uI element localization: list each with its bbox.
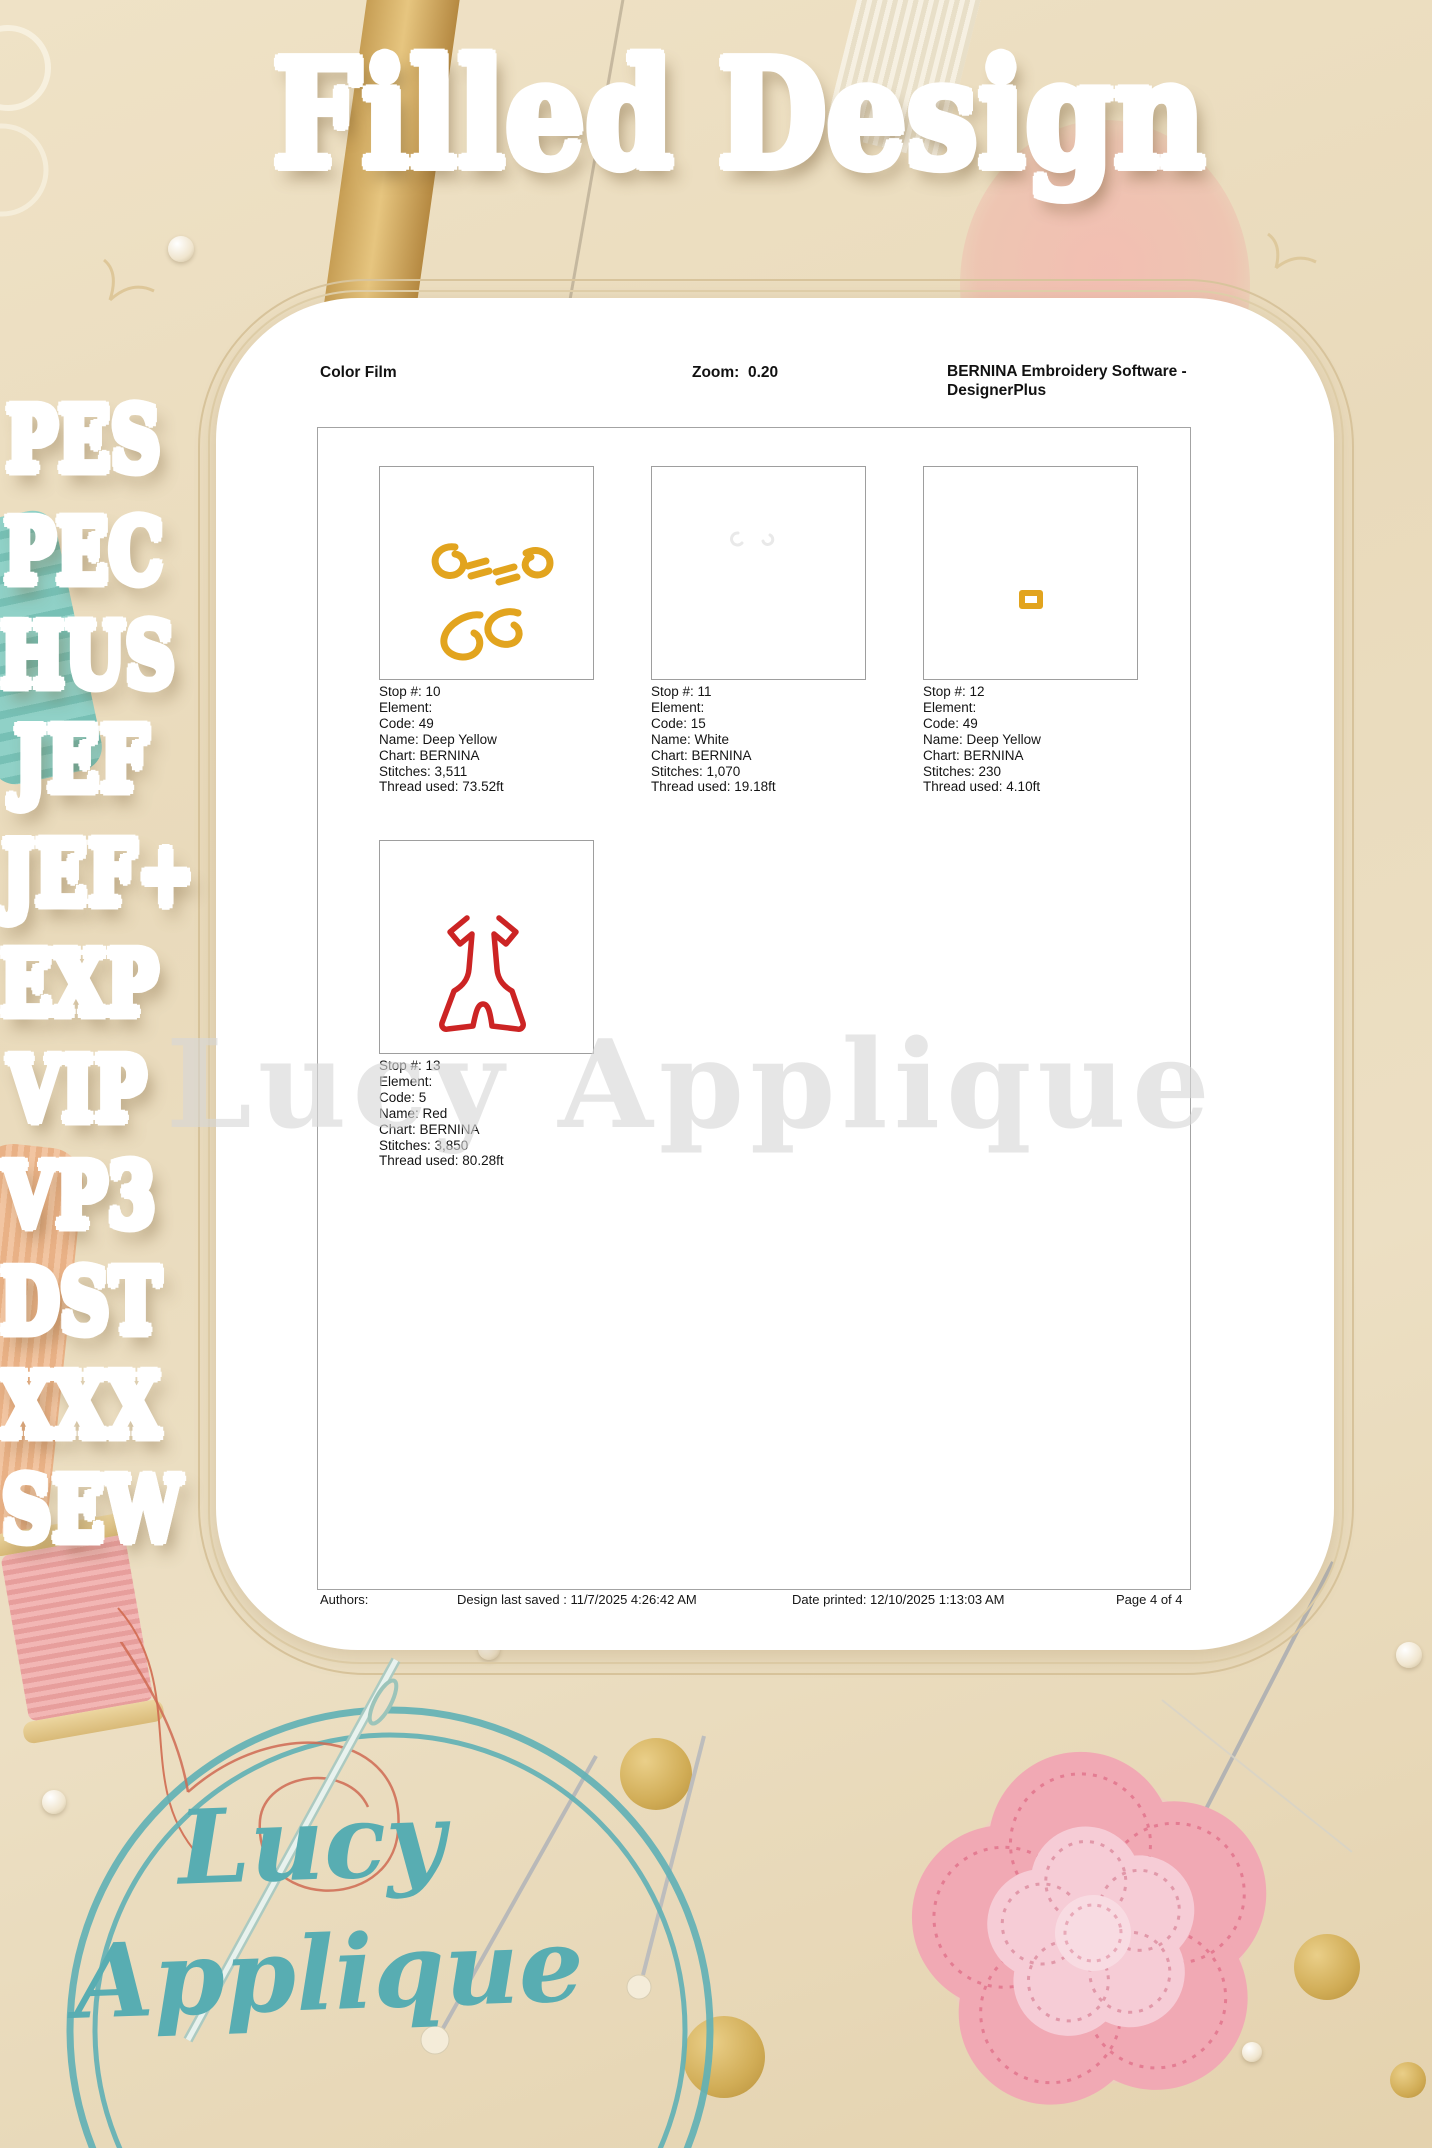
lucy-applique-logo: Lucy Applique: [28, 1642, 748, 2148]
stop-number-line: Stop #: 11: [651, 684, 901, 700]
code-line: Code: 15: [651, 716, 901, 732]
element-line: Element:: [651, 700, 901, 716]
format-label-pec: PEC: [4, 508, 164, 596]
element-line: Element:: [923, 700, 1173, 716]
last-saved-text: Design last saved : 11/7/2025 4:26:42 AM: [457, 1592, 697, 1607]
chart-line: Chart: BERNINA: [651, 748, 901, 764]
format-label-pes: PES: [6, 396, 161, 484]
element-line: Element:: [379, 1074, 629, 1090]
white-stitch-preview: [652, 467, 865, 679]
stop-number-line: Stop #: 10: [379, 684, 629, 700]
flower-applique: [878, 1718, 1308, 2148]
authors-label: Authors:: [320, 1592, 368, 1607]
format-label-exp: EXP: [0, 940, 159, 1028]
craft-background: Color Film Zoom: 0.20 BERNINA Embroidery…: [0, 0, 1432, 2148]
chart-line: Chart: BERNINA: [379, 1122, 629, 1138]
format-label-hus: HUS: [0, 612, 176, 700]
stitches-line: Stitches: 1,070: [651, 764, 901, 780]
code-line: Code: 49: [923, 716, 1173, 732]
logo-line2: Applique: [72, 1905, 586, 2043]
code-line: Code: 49: [379, 716, 629, 732]
name-line: Name: Deep Yellow: [923, 732, 1173, 748]
name-line: Name: Deep Yellow: [379, 732, 629, 748]
stitches-line: Stitches: 3,850: [379, 1138, 629, 1154]
color-film-document: Color Film Zoom: 0.20 BERNINA Embroidery…: [216, 298, 1334, 1650]
format-label-jef: JEF: [14, 716, 149, 804]
format-label-jef-plus: JEF+: [2, 830, 195, 918]
date-printed-text: Date printed: 12/10/2025 1:13:03 AM: [792, 1592, 1005, 1607]
stop-thumbnail-13: [379, 840, 594, 1054]
page-number: Page 4 of 4: [1116, 1592, 1183, 1607]
stop-thumbnail-11: [651, 466, 866, 680]
format-label-sew: SEW: [2, 1466, 182, 1554]
app-name: BERNINA Embroidery Software - DesignerPl…: [947, 362, 1219, 400]
format-label-vp3: VP3: [2, 1152, 156, 1240]
stop-number-line: Stop #: 13: [379, 1058, 629, 1074]
format-label-xxx: XXX: [0, 1362, 161, 1450]
report-title: Color Film: [320, 364, 397, 382]
name-line: Name: Red: [379, 1106, 629, 1122]
zoom-value: 0.20: [748, 364, 778, 382]
code-line: Code: 5: [379, 1090, 629, 1106]
stitches-line: Stitches: 230: [923, 764, 1173, 780]
stop-info-13: Stop #: 13 Element: Code: 5 Name: Red Ch…: [379, 1058, 629, 1169]
stop-info-12: Stop #: 12 Element: Code: 49 Name: Deep …: [923, 684, 1173, 795]
stop-thumbnail-10: [379, 466, 594, 680]
red-stitch-preview: [380, 841, 593, 1053]
stop-info-11: Stop #: 11 Element: Code: 15 Name: White…: [651, 684, 901, 795]
format-label-vip: VIP: [8, 1046, 147, 1134]
page-title: Filled Design: [272, 40, 1205, 189]
name-line: Name: White: [651, 732, 901, 748]
thread-used-line: Thread used: 19.18ft: [651, 779, 901, 795]
chart-line: Chart: BERNINA: [379, 748, 629, 764]
format-label-dst: DST: [0, 1258, 162, 1346]
stop-thumbnail-12: [923, 466, 1138, 680]
stop-info-10: Stop #: 10 Element: Code: 49 Name: Deep …: [379, 684, 629, 795]
color-film-grid: Stop #: 10 Element: Code: 49 Name: Deep …: [317, 427, 1191, 1590]
thread-used-line: Thread used: 73.52ft: [379, 779, 629, 795]
thread-used-line: Thread used: 80.28ft: [379, 1153, 629, 1169]
element-line: Element:: [379, 700, 629, 716]
stop-number-line: Stop #: 12: [923, 684, 1173, 700]
logo-line1: Lucy: [176, 1779, 447, 1908]
stitches-line: Stitches: 3,511: [379, 764, 629, 780]
deep-yellow-buckle-preview: [924, 467, 1137, 679]
deep-yellow-stitch-preview: [380, 467, 593, 679]
zoom-label: Zoom:: [692, 364, 739, 382]
thread-used-line: Thread used: 4.10ft: [923, 779, 1173, 795]
chart-line: Chart: BERNINA: [923, 748, 1173, 764]
